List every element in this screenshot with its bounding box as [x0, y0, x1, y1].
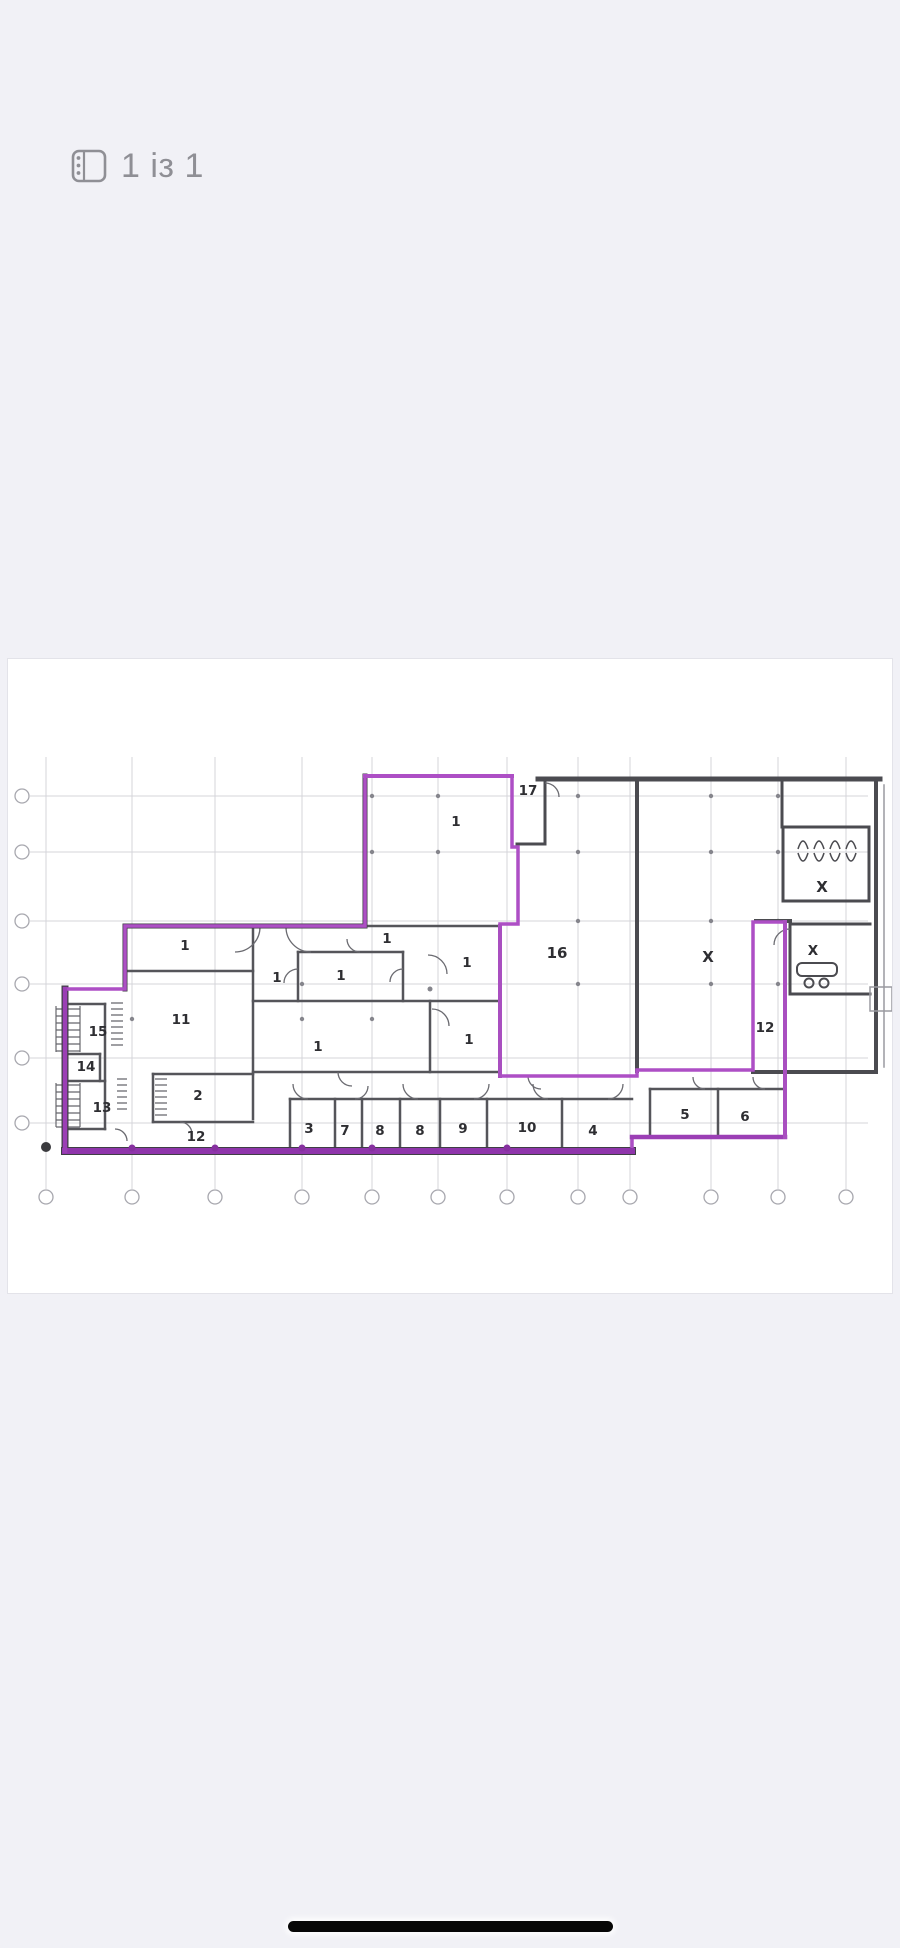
room-label: 11	[172, 1012, 191, 1028]
room-label: 13	[93, 1100, 112, 1116]
grid-axis-bubbles	[15, 789, 853, 1204]
room-label: 1	[382, 931, 391, 947]
room-label: 1	[462, 955, 471, 971]
walls	[65, 779, 892, 1147]
room-label: 5	[680, 1107, 689, 1123]
stair-treads	[798, 841, 856, 861]
room-label: X	[808, 943, 819, 959]
room-label: 1	[336, 968, 345, 984]
room-label: 16	[547, 944, 568, 962]
room-label: 17	[519, 783, 538, 799]
room-label: 1	[313, 1039, 322, 1055]
room-label: 6	[740, 1109, 749, 1125]
room-label: 1	[180, 938, 189, 954]
room-label: 14	[77, 1059, 96, 1075]
floor-plan: 1 17 1 1 1 1 1 16 X X X 11 15 14 13 2 12…	[8, 659, 892, 1293]
room-label: 1	[272, 970, 281, 986]
room-label: 4	[588, 1123, 597, 1139]
room-label: 12	[187, 1129, 206, 1145]
home-indicator[interactable]	[288, 1921, 613, 1932]
hatched-walls	[56, 1003, 167, 1127]
document-page[interactable]: 1 17 1 1 1 1 1 16 X X X 11 15 14 13 2 12…	[7, 658, 893, 1294]
room-label: 1	[464, 1032, 473, 1048]
room-label: 8	[415, 1123, 424, 1139]
room-label: 10	[518, 1120, 537, 1136]
room-label: 15	[89, 1024, 108, 1040]
page-indicator-text: 1 із 1	[121, 148, 204, 184]
room-label: 2	[193, 1088, 202, 1104]
page-thumbnails-icon[interactable]	[70, 148, 108, 184]
room-label: 12	[756, 1020, 775, 1036]
room-label: X	[816, 878, 828, 896]
room-label: X	[702, 948, 714, 966]
pdf-viewer-screen: 1 із 1	[0, 0, 900, 1948]
room-label: 8	[375, 1123, 384, 1139]
room-label: 1	[451, 814, 460, 830]
unit-boundary-path	[65, 776, 785, 1151]
room-label: 7	[340, 1123, 349, 1139]
page-indicator-header: 1 із 1	[70, 146, 204, 186]
room-label: 9	[458, 1121, 467, 1137]
room-label: 3	[304, 1121, 313, 1137]
door-swings	[115, 783, 790, 1141]
room-labels: 1 17 1 1 1 1 1 16 X X X 11 15 14 13 2 12…	[77, 783, 829, 1145]
